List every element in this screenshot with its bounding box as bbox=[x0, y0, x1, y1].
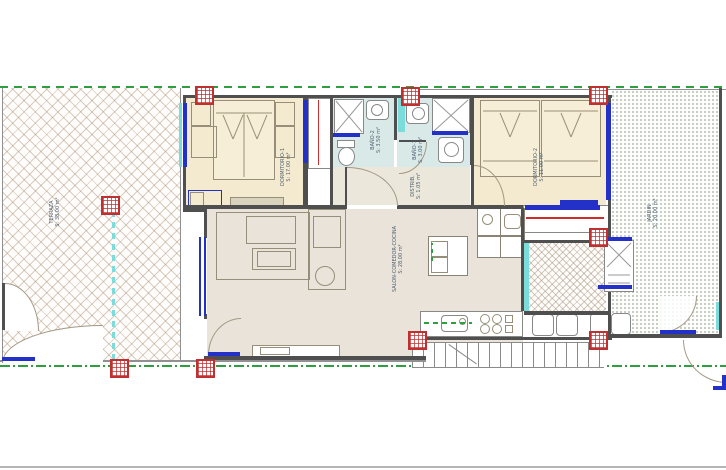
column-marker-bottom-2 bbox=[196, 359, 215, 378]
sofa-cushions bbox=[246, 216, 296, 244]
window-dorm1-left bbox=[183, 103, 187, 167]
column-marker-top-3 bbox=[589, 86, 608, 105]
window-dorm1-right bbox=[303, 100, 308, 163]
shower-banyo1-curb bbox=[432, 131, 468, 135]
nightstand-right bbox=[275, 102, 295, 126]
wardrobe-dorm1 bbox=[308, 98, 332, 169]
cabinet-sink-bowl bbox=[482, 214, 493, 225]
wall-banyo2-left bbox=[330, 98, 333, 209]
stove-control-1 bbox=[505, 315, 513, 323]
shower-x-icon bbox=[433, 99, 469, 132]
outdoor-chair-4 bbox=[611, 313, 631, 335]
window-living-left-outer bbox=[199, 237, 201, 316]
column-marker-right-1 bbox=[589, 228, 608, 247]
salon-label: SALON-COMEDOR-COCINAS: 28.00 m² bbox=[392, 217, 404, 301]
screenshot-rule bbox=[0, 466, 726, 468]
terraza-door-leaf-lower bbox=[2, 357, 35, 361]
burner-2 bbox=[492, 314, 502, 324]
toilet-banyo2-bowl bbox=[338, 147, 355, 166]
wall-vestibule-bottom-l bbox=[333, 205, 347, 209]
column-marker-right-2 bbox=[589, 331, 608, 350]
exterior-stairs bbox=[412, 342, 604, 368]
banyo2-label: BAÑO-2S: 3.50 m² bbox=[370, 98, 382, 182]
wall-dorm2-left bbox=[470, 98, 474, 165]
living-door-leaf bbox=[208, 352, 240, 356]
burner-3 bbox=[480, 324, 490, 334]
window-dorm2-right bbox=[606, 103, 611, 200]
wall-living-left-a bbox=[204, 212, 207, 238]
floor-plan-canvas: TERRAZAS: 38.00 m² DORMITORIO-1S: 17.00 … bbox=[0, 0, 726, 470]
wall-garden-right bbox=[719, 88, 722, 338]
wall-patio-bottom bbox=[524, 311, 608, 315]
burner-4 bbox=[492, 324, 502, 334]
kitchen-cabinet-3 bbox=[477, 236, 502, 258]
column-marker-top-2 bbox=[401, 87, 420, 106]
wardrobe-dorm2-rail bbox=[526, 217, 604, 219]
outdoor-chair-1 bbox=[532, 314, 554, 336]
exterior-gate-swing bbox=[683, 340, 726, 383]
wardrobe-dorm1-rail bbox=[318, 100, 319, 165]
bed-detail-icon bbox=[481, 101, 539, 176]
tv-unit bbox=[260, 347, 290, 355]
shower-banyo2-curb bbox=[333, 133, 360, 137]
wall-kitchen-bottom bbox=[420, 337, 612, 340]
glazing-dorm1-left bbox=[179, 103, 182, 167]
dresser-left bbox=[191, 126, 217, 158]
boundary-line-top bbox=[0, 86, 726, 88]
garden-door-leaf bbox=[660, 330, 696, 334]
shower-banyo2 bbox=[334, 99, 364, 134]
single-bed-left bbox=[480, 100, 540, 177]
jardin-label: JARDINS: 20.00 m² bbox=[647, 171, 659, 255]
stove-control-2 bbox=[505, 325, 513, 333]
dormitorio2-label: DORMITORIO-2S: 11.00 m² bbox=[533, 125, 545, 209]
plot-edge-top bbox=[420, 89, 726, 90]
outdoor-chair-2 bbox=[556, 314, 578, 336]
column-marker-top-1 bbox=[195, 86, 214, 105]
shower-x-icon bbox=[335, 100, 363, 133]
cabinet-appliance bbox=[504, 214, 521, 229]
dining-chair-1 bbox=[431, 241, 448, 257]
terraza-label: TERRAZAS: 38.00 m² bbox=[49, 170, 61, 254]
distribuidor-label: DISTRIB.S: 1.05 m² bbox=[410, 144, 422, 228]
closet-x-icon bbox=[605, 241, 633, 291]
utility-closet-bottom-bar bbox=[598, 285, 632, 289]
nightstand-left bbox=[191, 102, 211, 126]
side-table bbox=[315, 266, 335, 286]
bed-detail-icon bbox=[214, 101, 274, 179]
bed-detail-icon bbox=[542, 101, 600, 176]
terraza-axis-line bbox=[112, 214, 115, 360]
kitchen-axis-h bbox=[424, 322, 472, 324]
dormitorio1-label: DORMITORIO-1S: 17.00 m² bbox=[280, 125, 292, 209]
desk-chair bbox=[190, 192, 204, 206]
single-bed-right bbox=[541, 100, 601, 177]
shower-banyo1 bbox=[432, 98, 470, 133]
coffee-table-inner bbox=[257, 251, 291, 267]
double-bed bbox=[213, 100, 275, 180]
wall-garden-bottom bbox=[608, 334, 722, 338]
column-marker-bottom-3 bbox=[408, 331, 427, 350]
column-marker-bottom-1 bbox=[110, 359, 129, 378]
column-marker-left bbox=[101, 196, 120, 215]
kitchen-axis-v bbox=[431, 243, 433, 261]
wall-dorm1-right-b bbox=[303, 163, 308, 209]
window-living-left-inner bbox=[204, 237, 206, 316]
glazing-patio-left bbox=[524, 243, 529, 311]
glazing-garden-right bbox=[716, 302, 719, 330]
patio-hatch bbox=[529, 243, 606, 311]
exterior-gate-leaf-v bbox=[722, 375, 726, 390]
utility-closet-top-bar bbox=[604, 237, 632, 241]
terraza-door-leaf-upper bbox=[2, 283, 5, 330]
wall-banyo2-right bbox=[394, 98, 397, 140]
basin-banyo1-bowl bbox=[444, 142, 459, 157]
dining-chair-2 bbox=[431, 257, 448, 273]
wall-living-bottom bbox=[204, 356, 426, 360]
burner-1 bbox=[480, 314, 490, 324]
boundary-line-bottom bbox=[0, 365, 726, 367]
chaise-cushion bbox=[313, 216, 341, 248]
